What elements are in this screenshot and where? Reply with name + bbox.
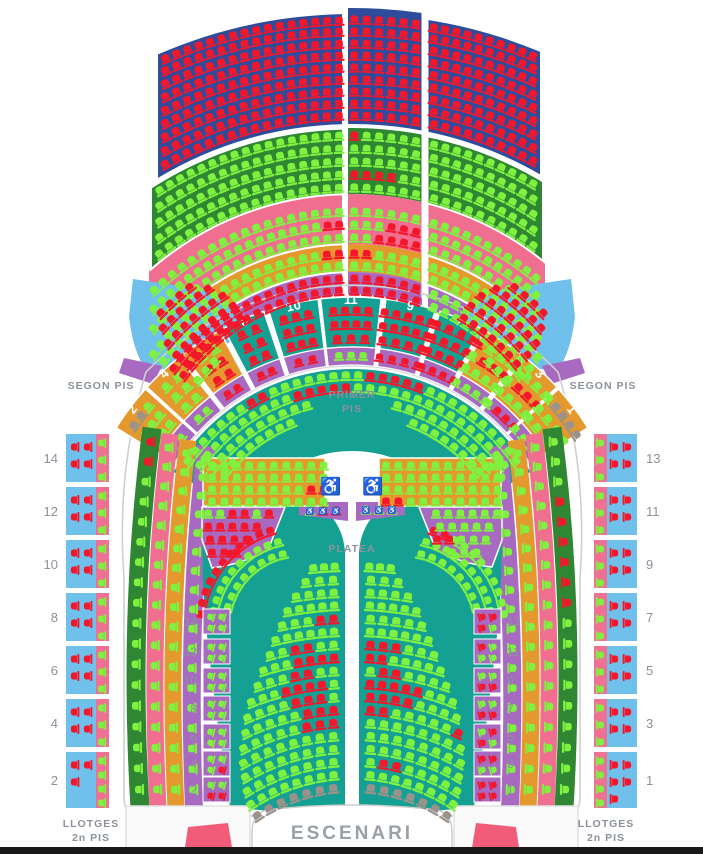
platea-box-number: 8 bbox=[190, 702, 197, 716]
wheelchair-seat-icon: ♿ bbox=[388, 506, 397, 515]
box-llotja[interactable] bbox=[66, 646, 96, 694]
platea-box[interactable] bbox=[474, 609, 501, 634]
box-number: 7 bbox=[646, 610, 653, 625]
box-llotja[interactable] bbox=[66, 540, 96, 588]
box-number: 8 bbox=[51, 610, 58, 625]
platea-box-number: 2 bbox=[190, 783, 197, 797]
platea-box-number: 14 bbox=[184, 615, 198, 629]
platea-box-number: 5 bbox=[507, 730, 514, 744]
box-number: 12 bbox=[44, 504, 58, 519]
box-number: 14 bbox=[44, 451, 58, 466]
platea-box[interactable] bbox=[474, 668, 501, 693]
box-llotja[interactable] bbox=[607, 593, 637, 641]
wheelchair-icon: ♿ bbox=[362, 476, 383, 496]
box-number: 3 bbox=[646, 716, 653, 731]
platea-box-number: 7 bbox=[507, 702, 514, 716]
box-llotja[interactable] bbox=[607, 487, 637, 535]
box-number: 4 bbox=[51, 716, 58, 731]
wheelchair-seat-icon: ♿ bbox=[362, 506, 371, 515]
llotges-left-label: LLOTGES 2n PIS bbox=[51, 818, 131, 845]
box-llotja[interactable] bbox=[66, 487, 96, 535]
box-number: 11 bbox=[646, 504, 660, 519]
theater-seat-map[interactable]: 2468101197531♿♿♿♿♿♿141210864213119753114… bbox=[0, 0, 703, 854]
segon-pis-left-label: SEGON PIS bbox=[60, 380, 142, 394]
box-number: 13 bbox=[646, 451, 660, 466]
box-number: 6 bbox=[51, 663, 58, 678]
box-llotja[interactable] bbox=[607, 699, 637, 747]
platea-box[interactable] bbox=[474, 777, 501, 802]
platea-box[interactable] bbox=[474, 639, 501, 664]
box-number: 10 bbox=[44, 557, 58, 572]
box-llotja[interactable] bbox=[607, 540, 637, 588]
wheelchair-seat-icon: ♿ bbox=[306, 507, 315, 516]
box-number: 9 bbox=[646, 557, 653, 572]
platea-box-number: 1 bbox=[507, 783, 514, 797]
box-number: 5 bbox=[646, 663, 653, 678]
platea-box[interactable] bbox=[474, 751, 501, 776]
box-llotja[interactable] bbox=[66, 699, 96, 747]
primer-pis-label: PRIMER PIS bbox=[312, 389, 392, 416]
platea-box[interactable] bbox=[203, 609, 230, 634]
segon-pis-right-label: SEGON PIS bbox=[562, 380, 644, 394]
platea-box-number: 13 bbox=[507, 615, 521, 629]
box-number: 2 bbox=[51, 773, 58, 788]
llotges-right-label: LLOTGES 2n PIS bbox=[566, 818, 646, 845]
platea-box[interactable] bbox=[203, 639, 230, 664]
platea-box[interactable] bbox=[474, 724, 501, 749]
platea-box-number: 3 bbox=[507, 757, 514, 771]
wheelchair-icon: ♿ bbox=[320, 476, 341, 496]
wheelchair-seat-icon: ♿ bbox=[332, 507, 341, 516]
wheelchair-seat-icon: ♿ bbox=[319, 507, 328, 516]
platea-box-number: 12 bbox=[184, 645, 198, 659]
platea-box-number: 10 bbox=[184, 674, 198, 688]
platea-box-number: 4 bbox=[190, 757, 197, 771]
box-llotja[interactable] bbox=[607, 434, 637, 482]
platea-box-number: 11 bbox=[507, 645, 520, 659]
platea-box-number: 9 bbox=[507, 674, 514, 688]
platea-box-number: 6 bbox=[190, 730, 197, 744]
platea-box[interactable] bbox=[203, 668, 230, 693]
platea-box[interactable] bbox=[474, 696, 501, 721]
platea-box[interactable] bbox=[203, 724, 230, 749]
box-number: 1 bbox=[646, 773, 653, 788]
box-llotja[interactable] bbox=[607, 646, 637, 694]
platea-box[interactable] bbox=[203, 696, 230, 721]
platea-label: PLATEA bbox=[312, 543, 392, 557]
seat-map-page: { "labels": { "segon_pis_left": "SEGON P… bbox=[0, 0, 703, 854]
stage-area bbox=[0, 847, 703, 854]
wheelchair-seat-icon: ♿ bbox=[375, 506, 384, 515]
box-llotja[interactable] bbox=[66, 593, 96, 641]
platea-box[interactable] bbox=[203, 751, 230, 776]
box-llotja[interactable] bbox=[66, 434, 96, 482]
escenari-label: ESCENARI bbox=[262, 822, 442, 847]
platea-box[interactable] bbox=[203, 777, 230, 802]
